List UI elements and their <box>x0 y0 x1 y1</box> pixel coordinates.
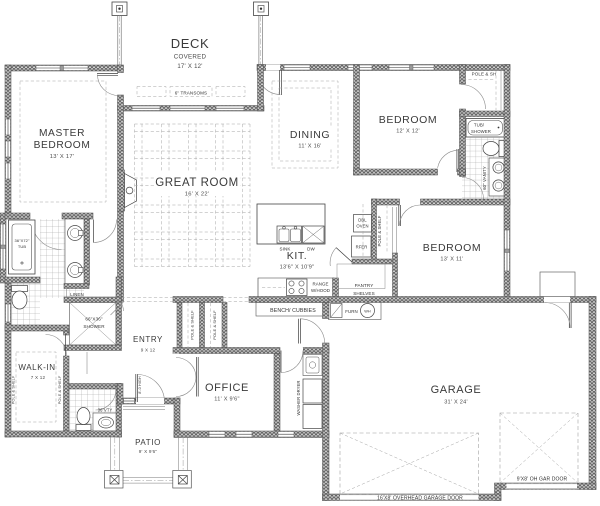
svg-text:BEDROOM: BEDROOM <box>379 114 437 126</box>
svg-text:SHOWER: SHOWER <box>83 324 105 329</box>
svg-text:6" TRANSOMS: 6" TRANSOMS <box>175 91 207 96</box>
svg-text:RANGE: RANGE <box>312 282 328 287</box>
svg-text:17' X 12': 17' X 12' <box>177 64 202 70</box>
svg-text:16' X 22': 16' X 22' <box>185 192 209 198</box>
svg-text:MASTER: MASTER <box>39 128 85 139</box>
svg-text:POLE & SHELF: POLE & SHELF <box>377 215 382 246</box>
svg-text:31' X 24': 31' X 24' <box>444 400 468 406</box>
svg-text:BEDROOM: BEDROOM <box>423 242 481 254</box>
svg-text:TUB/: TUB/ <box>474 123 485 128</box>
svg-text:SHOWER: SHOWER <box>471 129 491 134</box>
svg-text:OFFICE: OFFICE <box>205 382 249 394</box>
svg-text:13' X 17': 13' X 17' <box>50 154 74 160</box>
svg-text:POLE & SHELF: POLE & SHELF <box>212 310 217 340</box>
svg-text:DECK: DECK <box>171 36 210 51</box>
svg-text:8'-0 HIGH: 8'-0 HIGH <box>138 376 142 394</box>
svg-text:36"X72": 36"X72" <box>15 238 30 243</box>
svg-text:7 X 12: 7 X 12 <box>31 375 46 380</box>
svg-text:WH: WH <box>364 310 371 314</box>
svg-text:OVEN: OVEN <box>356 224 368 229</box>
svg-text:GARAGE: GARAGE <box>431 384 482 396</box>
svg-text:DW: DW <box>307 247 315 252</box>
svg-text:13' X 11': 13' X 11' <box>440 257 463 263</box>
svg-text:TUB: TUB <box>18 244 26 249</box>
svg-text:PANTRY: PANTRY <box>355 283 374 288</box>
svg-text:PATIO: PATIO <box>135 438 161 447</box>
svg-text:16'X8' OVERHEAD GARAGE DOOR: 16'X8' OVERHEAD GARAGE DOOR <box>377 495 463 501</box>
svg-text:11' X 16': 11' X 16' <box>298 144 321 150</box>
svg-text:KIT.: KIT. <box>287 250 308 262</box>
svg-text:WASHER DRYER: WASHER DRYER <box>296 380 301 415</box>
svg-text:FURN: FURN <box>345 309 358 314</box>
svg-text:W/HOOD: W/HOOD <box>311 288 330 293</box>
svg-text:LINEN: LINEN <box>70 292 83 297</box>
svg-text:WALK-IN: WALK-IN <box>18 363 55 372</box>
svg-text:RFER: RFER <box>356 245 368 250</box>
svg-text:POLE & SHELF: POLE & SHELF <box>190 310 195 340</box>
svg-text:COVERED: COVERED <box>174 54 207 61</box>
svg-text:9'X8' OH GAR DOOR: 9'X8' OH GAR DOOR <box>517 477 568 483</box>
svg-text:9 X 12: 9 X 12 <box>141 348 156 353</box>
svg-text:BENCH/ CUBBIES: BENCH/ CUBBIES <box>270 308 316 314</box>
svg-text:66"X36": 66"X36" <box>85 317 102 322</box>
svg-text:9' X 9'6": 9' X 9'6" <box>139 449 158 454</box>
svg-text:POLE & SHELF: POLE & SHELF <box>11 375 16 404</box>
svg-text:ENTRY: ENTRY <box>133 335 163 344</box>
svg-text:POLE & SH: POLE & SH <box>472 72 497 77</box>
svg-text:BEDROOM: BEDROOM <box>34 140 91 151</box>
svg-text:36"VTY: 36"VTY <box>98 408 113 413</box>
svg-text:GREAT ROOM: GREAT ROOM <box>155 177 239 189</box>
svg-text:11' X 9'6": 11' X 9'6" <box>214 397 239 403</box>
svg-text:SHELVES: SHELVES <box>353 291 375 296</box>
svg-text:DINING: DINING <box>290 129 330 141</box>
svg-text:POLE & SHELF: POLE & SHELF <box>57 375 62 404</box>
svg-text:60" VANITY: 60" VANITY <box>482 166 487 190</box>
svg-text:13'6" X 10'9": 13'6" X 10'9" <box>280 265 315 271</box>
svg-text:12' X 12': 12' X 12' <box>396 129 420 135</box>
